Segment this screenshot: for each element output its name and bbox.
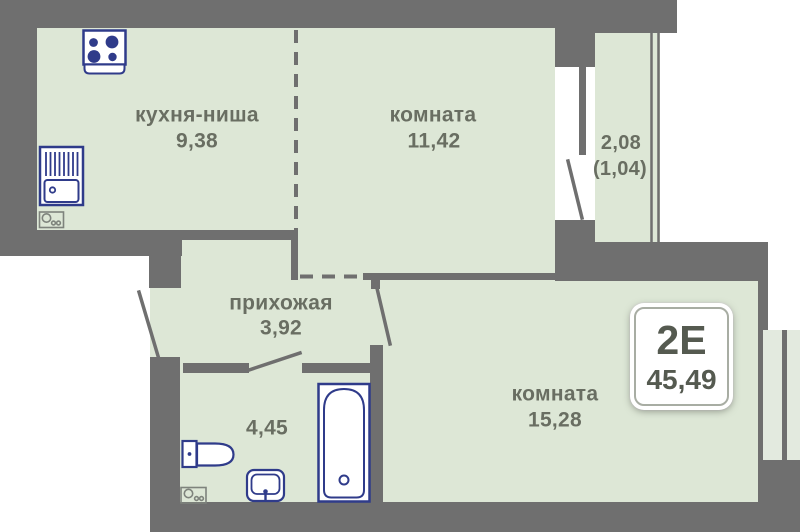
room-area-balcony-counted: (1,04)	[593, 159, 647, 179]
room-area-hallway: 3,92	[260, 318, 302, 339]
plan-badge: 2Е 45,49	[630, 303, 733, 410]
wall	[183, 363, 249, 373]
room-area-living2: 15,28	[528, 410, 582, 431]
room-label-kitchen: кухня-ниша	[135, 105, 259, 126]
room-area-bathroom: 4,45	[246, 418, 288, 439]
room-area-living1: 11,42	[408, 131, 461, 152]
wall	[371, 280, 380, 289]
entrance-doorway-fill	[150, 288, 180, 357]
plan-total-area: 45,49	[646, 366, 716, 394]
room-label-living1: комната	[390, 105, 477, 126]
floor-plan: кухня-ниша 9,38 комната 11,42 2,08 (1,04…	[0, 0, 800, 532]
wall	[0, 0, 595, 28]
wall	[291, 230, 298, 280]
window	[763, 330, 782, 460]
wall	[149, 230, 181, 288]
room-area-balcony: 2,08	[601, 133, 641, 153]
wall	[555, 242, 768, 281]
room-label-living2: комната	[512, 384, 599, 405]
wall	[555, 23, 595, 67]
plan-badge-frame: 2Е 45,49	[634, 307, 729, 406]
wall	[0, 0, 37, 256]
wall	[758, 281, 768, 330]
room-label-hallway: прихожая	[229, 293, 333, 314]
wall	[150, 502, 800, 532]
room-area-kitchen: 9,38	[176, 131, 218, 152]
wall	[182, 230, 296, 240]
window	[787, 330, 800, 460]
wall	[363, 273, 555, 280]
wall	[595, 0, 677, 33]
plan-type: 2Е	[656, 320, 706, 361]
balcony-door-swing	[568, 161, 582, 218]
wall	[370, 345, 383, 502]
wall	[579, 67, 586, 155]
